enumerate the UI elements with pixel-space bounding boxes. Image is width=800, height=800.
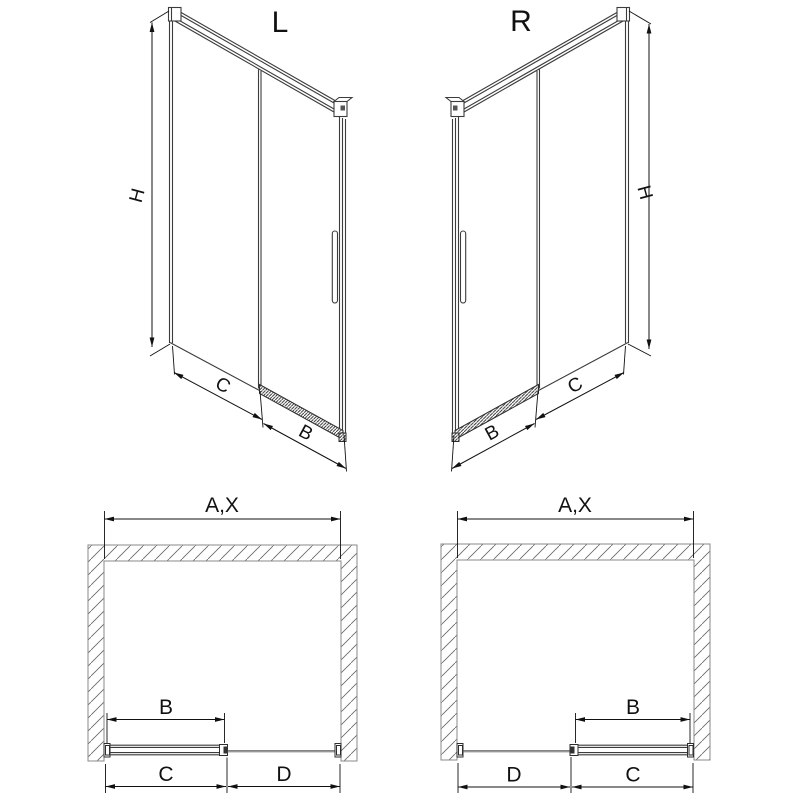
view-r-title: R xyxy=(510,5,532,38)
dim-label-ax-l: A,X xyxy=(205,494,239,517)
dim-label-d-plan-l: D xyxy=(276,763,291,786)
dim-label-h-r: H xyxy=(632,183,656,202)
dim-label-h-l: H xyxy=(126,186,150,205)
dim-b-plan-r: B xyxy=(576,696,691,743)
view-l-title: L xyxy=(272,6,289,39)
door-handle-r xyxy=(461,231,466,303)
dim-label-c-plan-l: C xyxy=(158,763,173,786)
dim-label-b-plan-l: B xyxy=(159,696,173,719)
dim-label-c-plan-r: C xyxy=(625,764,640,787)
technical-drawing-canvas: L xyxy=(0,0,800,800)
dim-label-d-plan-r: D xyxy=(506,764,521,787)
bottom-guide-r xyxy=(452,433,459,442)
bottom-guide-l xyxy=(339,433,346,442)
dimensions-iso-l: H C B xyxy=(126,11,347,472)
fixed-panel-r xyxy=(539,21,629,391)
dim-label-b-l: B xyxy=(295,421,316,446)
door-assembly-plan-r xyxy=(457,744,694,758)
isometric-view-l: L xyxy=(126,6,352,472)
dim-label-b-plan-r: B xyxy=(626,696,640,719)
fixed-panel-l xyxy=(170,21,260,391)
niche-walls-l xyxy=(88,545,357,761)
drawing-svg: L xyxy=(0,0,800,800)
door-assembly-plan-l xyxy=(104,744,341,758)
top-rail-l xyxy=(169,8,353,117)
top-rail-r xyxy=(446,8,630,117)
plan-view-l: A,X B C D xyxy=(88,494,357,793)
sliding-door-r xyxy=(452,70,540,442)
dim-b-plan-l: B xyxy=(107,696,225,743)
dim-label-b-r: B xyxy=(482,421,503,446)
dim-label-ax-r: A,X xyxy=(558,494,592,517)
dim-dc-plan-r: D C xyxy=(458,757,693,793)
dim-cd-plan-l: C D xyxy=(106,758,341,794)
sliding-door-l xyxy=(259,70,347,442)
door-handle-l xyxy=(332,231,337,303)
isometric-view-r: R xyxy=(446,5,656,472)
plan-view-r: A,X B D C xyxy=(441,494,710,793)
